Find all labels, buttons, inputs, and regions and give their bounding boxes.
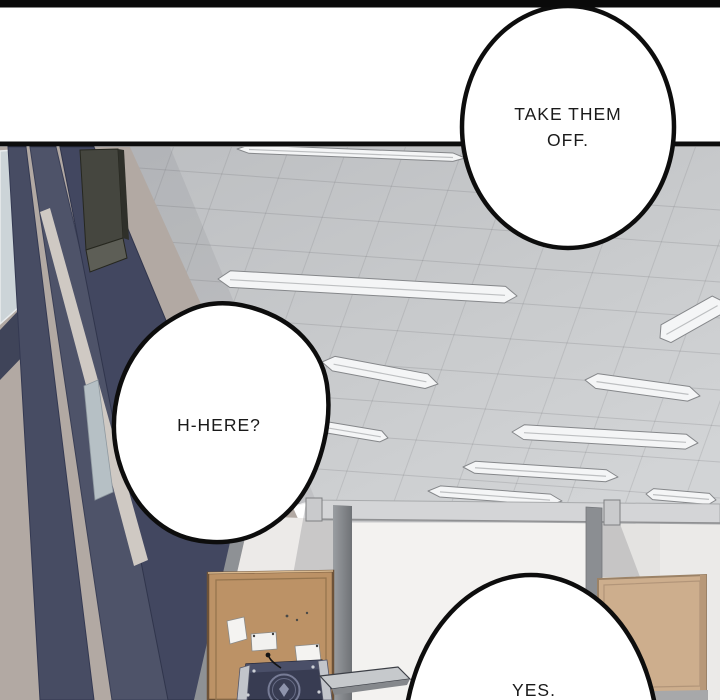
push-pin — [296, 619, 298, 621]
podium-screw — [252, 669, 255, 672]
manga-panel: TAKE THEM OFF. H-HERE? YES. — [0, 0, 720, 700]
wall-speaker-box — [80, 149, 129, 272]
podium-screw — [311, 665, 314, 668]
push-pin — [306, 612, 308, 614]
speech-bubble-take-them-off: TAKE THEM OFF. — [462, 6, 674, 248]
bubble-text-line: H-HERE? — [177, 415, 261, 435]
podium-screw — [317, 690, 320, 693]
microphone-head — [266, 653, 271, 658]
speaker-front — [80, 149, 123, 250]
bubble-text-line: YES. — [512, 680, 556, 700]
panel-top-bar — [0, 0, 720, 8]
wall-post-left — [333, 505, 352, 700]
push-pin — [253, 635, 255, 637]
push-pin — [316, 645, 318, 647]
bubble-text-line: OFF. — [547, 130, 589, 150]
board-edge-shade — [700, 575, 706, 692]
panel-scene: TAKE THEM OFF. H-HERE? YES. — [0, 0, 720, 700]
beam-bracket — [306, 498, 322, 521]
podium-screw — [246, 693, 249, 696]
push-pin — [272, 633, 274, 635]
push-pin — [286, 615, 289, 618]
bubble-shape — [462, 6, 674, 248]
pinned-paper — [227, 617, 247, 644]
beam-bracket — [604, 500, 620, 525]
bubble-text-line: TAKE THEM — [514, 104, 622, 124]
